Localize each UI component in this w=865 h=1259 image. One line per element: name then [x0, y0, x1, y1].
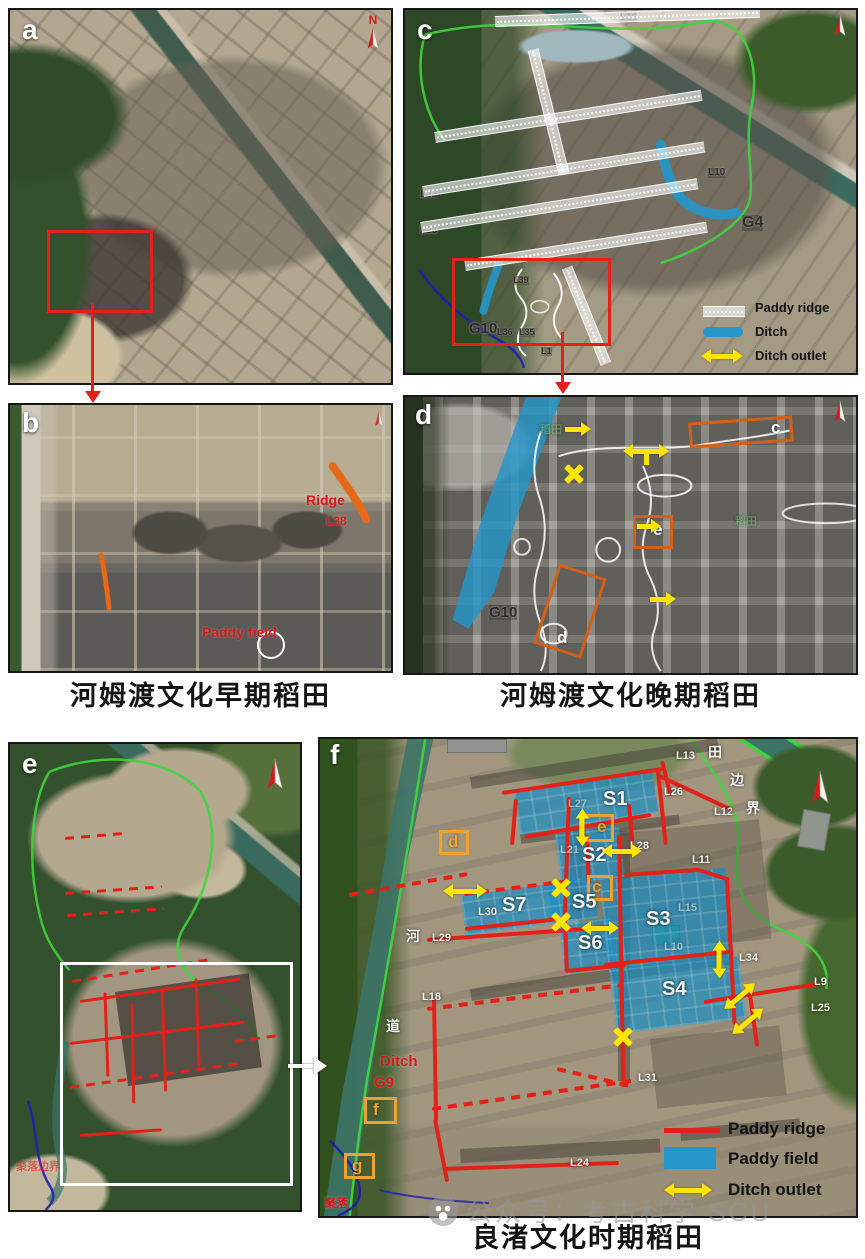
ditch-outlet-cross [550, 911, 572, 933]
detail-box-c-label: c [771, 419, 780, 436]
river-char: 道 [386, 1019, 400, 1033]
detail-box-d-label: d [448, 833, 458, 850]
inset-arrow-line [91, 303, 94, 393]
trench-label: L29 [432, 933, 451, 944]
ditch-label-g4: G4 [742, 215, 763, 231]
detail-box-d-label: d [557, 629, 567, 646]
trench-label: L18 [422, 992, 441, 1003]
trench-label: L24 [570, 1158, 589, 1169]
ditch-outlet-arrow [637, 524, 651, 529]
caption-hemudu-early: 河姆渡文化早期稻田 [8, 682, 393, 712]
legend-ditch-swatch [703, 327, 743, 337]
north-arrow-icon [808, 767, 832, 814]
ditch-g9-number: G9 [374, 1075, 394, 1090]
legend-paddy-ridge-label: Paddy ridge [755, 300, 829, 315]
north-arrow-icon: N [365, 14, 381, 56]
detail-box-e-label: e [597, 818, 606, 835]
trench-label: L26 [664, 787, 683, 798]
ridge-label: Ridge [306, 493, 345, 507]
panel-b-photo: b Ridge L38 Paddy field [8, 403, 393, 673]
field-label-s7: S7 [502, 895, 526, 915]
inset-highlight-rect-c [452, 258, 611, 346]
ditch-label-g10: G10 [489, 605, 517, 620]
panel-letter-b: b [22, 409, 39, 437]
inset-arrow-line [561, 332, 564, 384]
trench-label: L30 [478, 907, 497, 918]
inset-arrow-head [555, 382, 571, 394]
legend-ditch-label: Ditch [755, 324, 788, 339]
trench-label: L11 [692, 855, 710, 866]
watermark: 公众号：考古科学 SCU [428, 1192, 772, 1229]
boundary-note-label: 聚落边界 [16, 1162, 60, 1173]
inset-arrow-head [85, 391, 101, 403]
detail-box-g-label: g [352, 1157, 362, 1174]
ditch-outlet-arrow-stem [644, 454, 649, 465]
inset-highlight-rect-e [60, 962, 293, 1186]
ditch-outlet-arrow [591, 926, 609, 931]
boundary-char: 边 [730, 773, 744, 787]
trench-label: L21 [560, 845, 579, 856]
ditch-g9-label: Ditch [380, 1054, 418, 1069]
trench-label: L25 [811, 1003, 830, 1014]
trench-label: L15 [678, 903, 697, 914]
ditch-outlet-cross [612, 1026, 634, 1048]
legend-paddy-ridge-swatch [703, 306, 745, 317]
trench-label: L10 [708, 168, 725, 178]
inset-highlight-rect-a [47, 230, 153, 313]
field-label-s1: S1 [603, 789, 627, 809]
boundary-char: 界 [746, 801, 760, 815]
legend-ditch-outlet-swatch [711, 354, 733, 359]
ditch-outlet-cross [550, 877, 572, 899]
excavation-dark-patch [650, 1025, 787, 1108]
ground-mark: 稻田 [735, 517, 757, 528]
panel-letter-e: e [22, 750, 38, 778]
legend-paddy-ridge-label: Paddy ridge [728, 1119, 825, 1139]
ditch-outlet-arrow [453, 889, 477, 894]
panel-c-photo: c L16 L32 L23 L10 G4 G10 L39 L36 L35 [403, 8, 858, 375]
trench-label: L12 [714, 807, 733, 818]
north-arrow-icon [832, 399, 848, 430]
river-char: 河 [406, 929, 420, 943]
trench-label: L31 [638, 1073, 657, 1084]
caption-hemudu-late: 河姆渡文化晚期稻田 [403, 682, 858, 712]
field-label-s4: S4 [662, 979, 686, 999]
settlement-note: 聚落 [324, 1197, 348, 1209]
ditch-outlet-cross [563, 463, 585, 485]
field-label-s3: S3 [646, 909, 670, 929]
trench-label: L9 [814, 977, 827, 988]
field-label-s6: S6 [578, 933, 602, 953]
trench-label-l38: L38 [326, 515, 347, 527]
trench-label: L34 [739, 953, 758, 964]
panel-letter-c: c [417, 16, 433, 44]
ditch-outlet-arrow [650, 597, 666, 602]
building-roof [447, 739, 507, 753]
ditch-outlet-arrow [580, 819, 585, 837]
inset-arrow-head [314, 1057, 327, 1075]
legend-paddy-field-label: Paddy field [728, 1149, 819, 1169]
ditch-outlet-arrow [612, 849, 632, 854]
panel-f-photo: f [318, 737, 858, 1218]
paddy-field-label: Paddy field [202, 625, 277, 639]
trench-label: L1 [541, 347, 552, 356]
panel-letter-a: a [22, 16, 38, 44]
panel-b-overlay [10, 405, 391, 671]
watermark-text: 公众号：考古科学 SCU [466, 1192, 772, 1229]
ground-mark: 稻田 [540, 425, 562, 436]
panel-letter-f: f [330, 741, 339, 769]
detail-box-c-label: c [592, 878, 601, 895]
compass-needle-icon [365, 27, 381, 51]
figure-canvas: a N c L16 L32 [0, 0, 865, 1259]
inset-arrow-line [288, 1064, 316, 1068]
panel-d-photo: d G10 稻田 稻田 c e d [403, 395, 858, 675]
trench-label: L13 [676, 751, 695, 762]
ditch-outlet-arrow [717, 951, 722, 969]
detail-box-f-label: f [373, 1101, 379, 1118]
north-arrow-icon [373, 409, 385, 434]
legend-paddy-field-swatch [664, 1147, 716, 1169]
panel-e-photo: e 聚落边界 [8, 742, 302, 1212]
north-arrow-icon [832, 14, 848, 43]
detail-box-f [364, 1097, 397, 1124]
watermark-logo-icon [428, 1196, 458, 1226]
ditch-outlet-arrow [565, 427, 581, 432]
panel-letter-d: d [415, 401, 432, 429]
legend-ditch-outlet-label: Ditch outlet [755, 348, 827, 363]
boundary-char: 田 [708, 745, 722, 759]
north-n-label: N [365, 14, 381, 26]
north-arrow-icon [264, 756, 286, 799]
legend-paddy-ridge-swatch [664, 1128, 720, 1133]
panel-a-photo: a N [8, 8, 393, 385]
trench-label: L10 [664, 942, 683, 953]
